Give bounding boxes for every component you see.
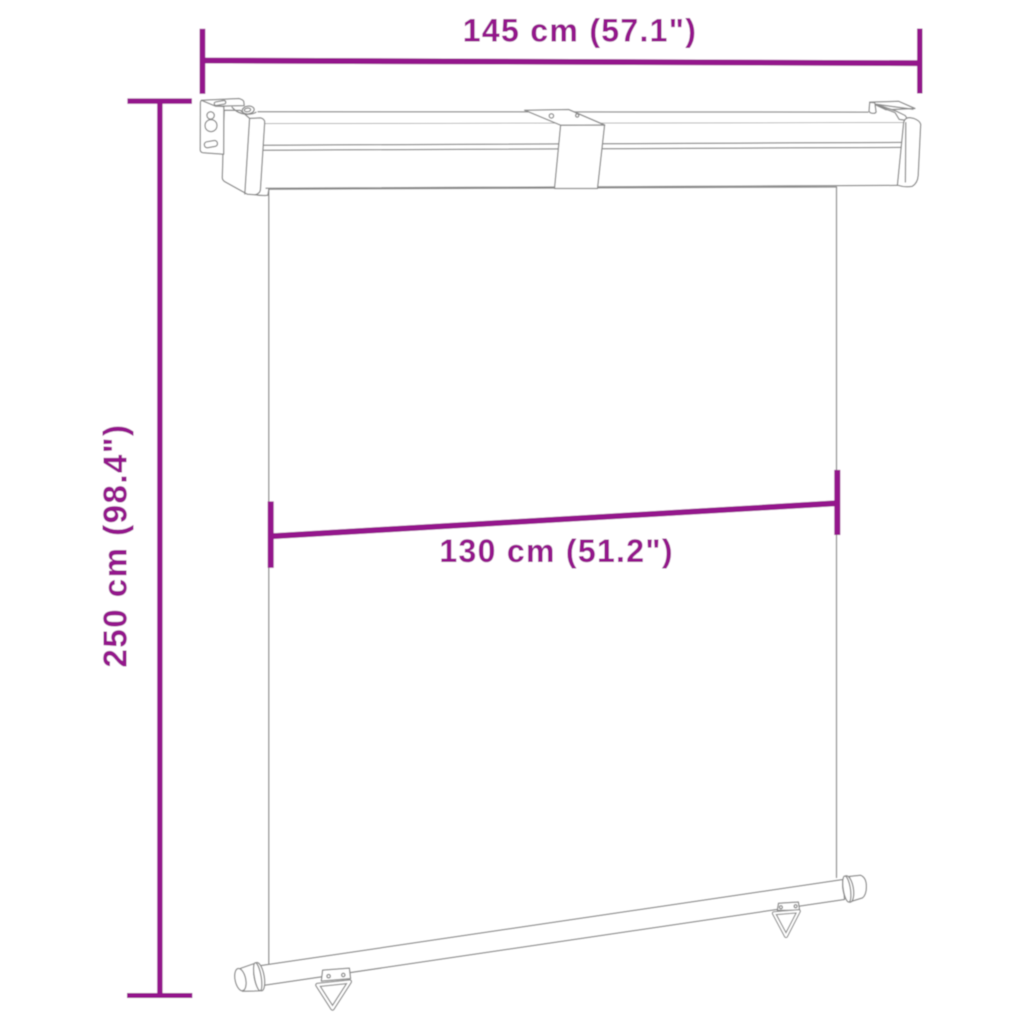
svg-text:145 cm (57.1"): 145 cm (57.1"): [463, 13, 697, 49]
svg-text:250 cm (98.4"): 250 cm (98.4"): [97, 424, 134, 668]
svg-text:130 cm (51.2"): 130 cm (51.2"): [439, 533, 673, 569]
